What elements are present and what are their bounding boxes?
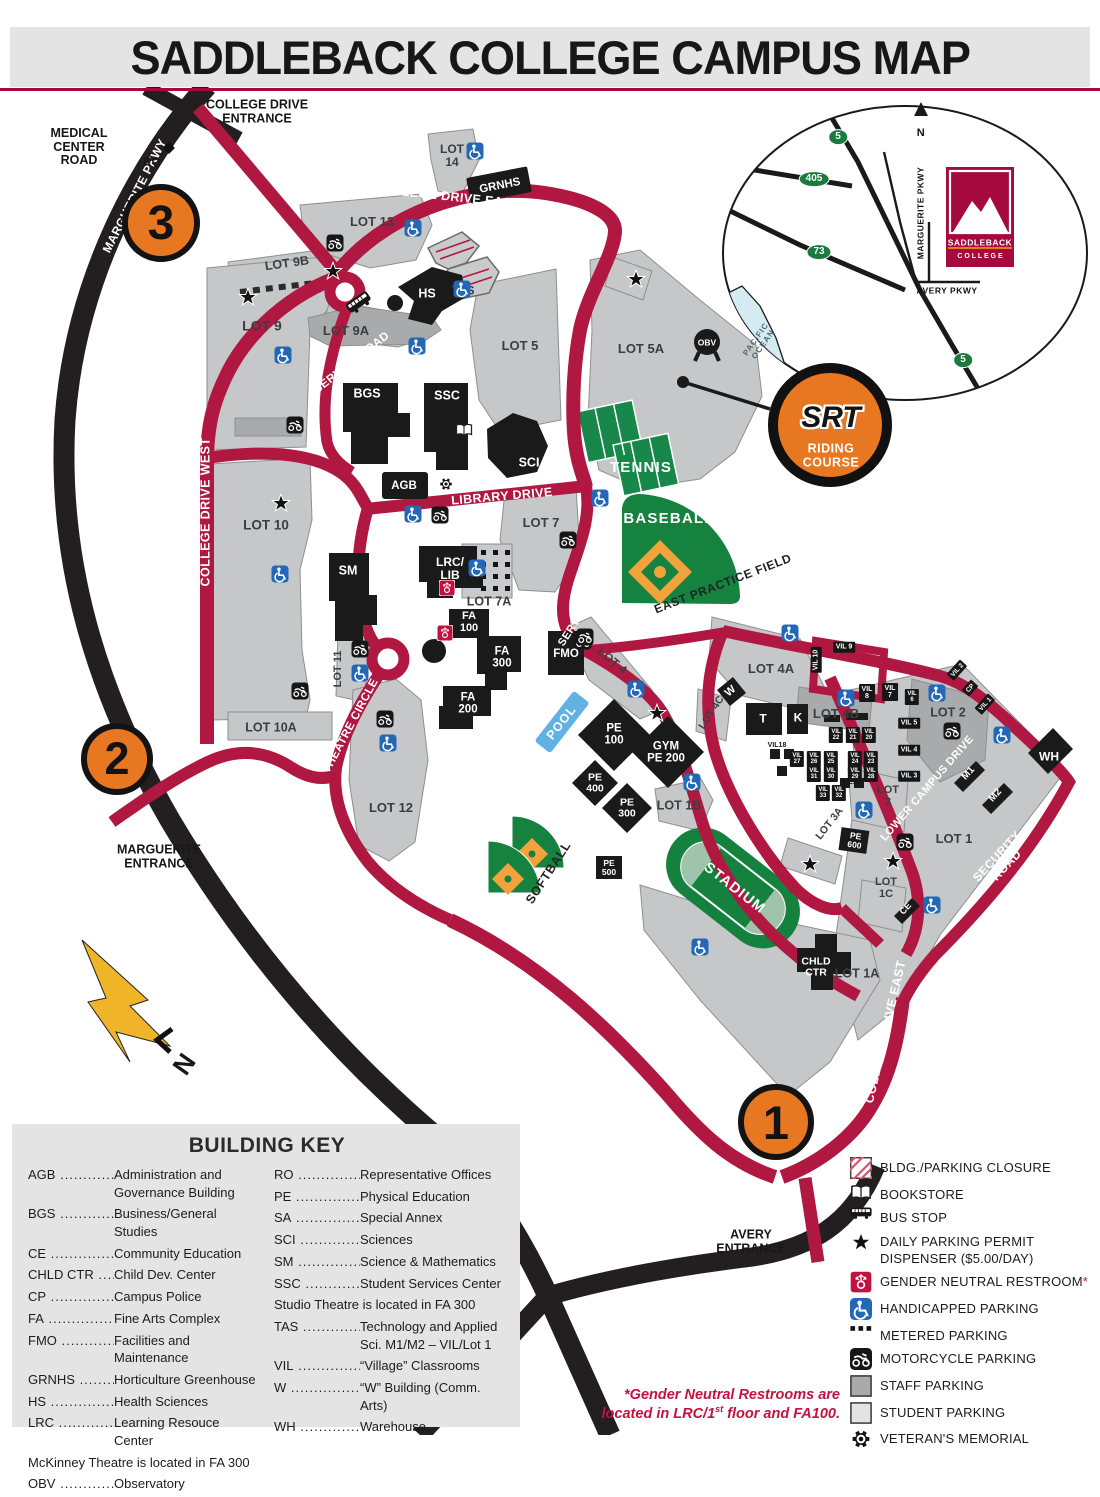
legend-label: MOTORCYCLE PARKING <box>880 1348 1036 1367</box>
building-desc: Special Annex <box>360 1209 506 1227</box>
legend-item-gender-neutral-restroom: GENDER NEUTRAL RESTROOM* <box>850 1271 1098 1293</box>
building-abbr: CHLD CTR <box>28 1266 114 1284</box>
legend-staff-icon <box>850 1375 880 1397</box>
building-abbr: PE <box>274 1188 360 1206</box>
building-abbr: SM <box>274 1253 360 1271</box>
legend-item-daily-parking-permit-dispenser-5-00-day: DAILY PARKING PERMITDISPENSER ($5.00/DAY… <box>850 1231 1098 1267</box>
building-abbr: SA <box>274 1209 360 1227</box>
legend-label: DAILY PARKING PERMITDISPENSER ($5.00/DAY… <box>880 1231 1034 1267</box>
building-key-row-sm: SMScience & Mathematics <box>274 1253 506 1271</box>
building-key-title: BUILDING KEY <box>28 1134 506 1158</box>
inset-map <box>723 102 1087 402</box>
building-key-row-ro: RORepresentative Offices <box>274 1166 506 1184</box>
building-abbr: FA <box>28 1310 114 1328</box>
page-title-banner: SADDLEBACK COLLEGE CAMPUS MAP <box>10 27 1090 87</box>
building-desc: “Village” Classrooms <box>360 1357 506 1375</box>
legend-label: HANDICAPPED PARKING <box>880 1298 1039 1317</box>
legend-student-icon <box>850 1402 880 1424</box>
building-desc: Child Dev. Center <box>114 1266 260 1284</box>
softball-fields <box>488 816 564 895</box>
building-desc: Science & Mathematics <box>360 1253 506 1271</box>
legend-label: BUS STOP <box>880 1207 947 1226</box>
legend-item-bldg-parking-closure: BLDG./PARKING CLOSURE <box>850 1157 1098 1179</box>
legend-item-handicapped-parking: HANDICAPPED PARKING <box>850 1298 1098 1320</box>
building-desc: Physical Education <box>360 1188 506 1206</box>
building-desc: Learning Resouce Center <box>114 1414 260 1449</box>
legend-label: GENDER NEUTRAL RESTROOM* <box>880 1271 1088 1290</box>
building-key-row-pe: PEPhysical Education <box>274 1188 506 1206</box>
legend-label: VETERAN'S MEMORIAL <box>880 1428 1029 1447</box>
route-marker-1: 1 <box>738 1084 814 1160</box>
building-abbr: W <box>274 1379 360 1414</box>
building-desc: Administration and Governance Building <box>114 1166 260 1201</box>
legend-hc-icon <box>850 1298 880 1320</box>
theatre-roundabout <box>372 643 404 675</box>
legend-label: METERED PARKING <box>880 1325 1008 1344</box>
building-key-note: Studio Theatre is located in FA 300 <box>274 1296 506 1314</box>
legend-label: BOOKSTORE <box>880 1184 964 1203</box>
building-desc: Campus Police <box>114 1288 260 1306</box>
building-desc: Health Sciences <box>114 1393 260 1411</box>
building-desc: Observatory <box>114 1475 260 1493</box>
route-marker-2: 2 <box>81 723 153 795</box>
building-key-row-vil: VIL“Village” Classrooms <box>274 1357 506 1375</box>
building-key-row-bgs: BGSBusiness/General Studies <box>28 1205 260 1240</box>
building-desc: Community Education <box>114 1245 260 1263</box>
legend-label: BLDG./PARKING CLOSURE <box>880 1157 1051 1176</box>
title-rule <box>0 88 1100 91</box>
building-abbr: RO <box>274 1166 360 1184</box>
building-abbr: CP <box>28 1288 114 1306</box>
building-abbr: VIL <box>274 1357 360 1375</box>
legend-item-bookstore: BOOKSTORE <box>850 1184 1098 1203</box>
building-key-row-fmo: FMOFacilities and Maintenance <box>28 1332 260 1367</box>
building-key-row-tas: TASTechnology and Applied Sci. M1/M2 – V… <box>274 1318 506 1353</box>
building-key-row-ssc: SSCStudent Services Center <box>274 1275 506 1293</box>
building-desc: Business/General Studies <box>114 1205 260 1240</box>
page-title: SADDLEBACK COLLEGE CAMPUS MAP <box>130 30 969 85</box>
campus-map-page: SADDLEBACK COLLEGE CAMPUS MAP MARGUERITE… <box>0 0 1100 1435</box>
route-marker-3: 3 <box>122 184 200 262</box>
legend-item-motorcycle-parking: MOTORCYCLE PARKING <box>850 1348 1098 1370</box>
legend-item-bus-stop: BUS STOP <box>850 1207 1098 1226</box>
building-key-row-hs: HSHealth Sciences <box>28 1393 260 1411</box>
legend-star-icon <box>850 1231 880 1253</box>
building-key-row-grnhs: GRNHSHorticulture Greenhouse <box>28 1371 260 1389</box>
building-abbr: TAS <box>274 1318 360 1353</box>
building-key-col2: RORepresentative OfficesPEPhysical Educa… <box>274 1166 506 1497</box>
map-legend: BLDG./PARKING CLOSUREBOOKSTOREBUS STOPDA… <box>850 1157 1098 1455</box>
building-key-panel: BUILDING KEY AGBAdministration and Gover… <box>12 1124 520 1427</box>
building-key-row-wh: WHWarehouse <box>274 1418 506 1436</box>
legend-item-student-parking: STUDENT PARKING <box>850 1402 1098 1424</box>
saddleback-logo <box>946 167 1014 267</box>
pool <box>534 691 589 754</box>
legend-label: STAFF PARKING <box>880 1375 984 1394</box>
building-key-row-sa: SASpecial Annex <box>274 1209 506 1227</box>
building-desc: Sciences <box>360 1231 506 1249</box>
legend-mc-icon <box>850 1348 880 1370</box>
building-abbr: WH <box>274 1418 360 1436</box>
building-key-row-w: W“W” Building (Comm. Arts) <box>274 1379 506 1414</box>
building-desc: Warehouse <box>360 1418 506 1436</box>
legend-metered-icon <box>850 1325 880 1332</box>
building-key-row-agb: AGBAdministration and Governance Buildin… <box>28 1166 260 1201</box>
building-key-row-cp: CPCampus Police <box>28 1288 260 1306</box>
building-key-row-obv: OBVObservatory <box>28 1475 260 1493</box>
building-abbr: BGS <box>28 1205 114 1240</box>
baseball-field <box>622 494 740 604</box>
legend-item-staff-parking: STAFF PARKING <box>850 1375 1098 1397</box>
legend-gnr-icon <box>850 1271 880 1293</box>
building-desc: Student Services Center <box>360 1275 506 1293</box>
building-abbr: GRNHS <box>28 1371 114 1389</box>
building-abbr: FMO <box>28 1332 114 1367</box>
north-arrow <box>82 940 172 1062</box>
building-desc: Technology and Applied Sci. M1/M2 – VIL/… <box>360 1318 506 1353</box>
building-abbr: SSC <box>274 1275 360 1293</box>
legend-vet-icon <box>850 1428 880 1450</box>
building-desc: Horticulture Greenhouse <box>114 1371 260 1389</box>
legend-label: STUDENT PARKING <box>880 1402 1005 1421</box>
building-abbr: OBV <box>28 1475 114 1493</box>
legend-item-metered-parking: METERED PARKING <box>850 1325 1098 1344</box>
building-key-note: McKinney Theatre is located in FA 300 <box>28 1454 260 1472</box>
building-abbr: CE <box>28 1245 114 1263</box>
building-desc: Facilities and Maintenance <box>114 1332 260 1367</box>
gender-neutral-footnote: *Gender Neutral Restrooms are located in… <box>590 1386 840 1423</box>
building-key-row-fa: FAFine Arts Complex <box>28 1310 260 1328</box>
legend-book-icon <box>850 1184 880 1201</box>
building-key-row-ce: CECommunity Education <box>28 1245 260 1263</box>
building-key-row-lrc: LRCLearning Resouce Center <box>28 1414 260 1449</box>
building-abbr: SCI <box>274 1231 360 1249</box>
building-abbr: HS <box>28 1393 114 1411</box>
building-abbr: AGB <box>28 1166 114 1201</box>
building-desc: “W” Building (Comm. Arts) <box>360 1379 506 1414</box>
building-key-row-sci: SCISciences <box>274 1231 506 1249</box>
bus-roundabout <box>330 277 360 307</box>
building-desc: Representative Offices <box>360 1166 506 1184</box>
building-key-row-chld-ctr: CHLD CTRChild Dev. Center <box>28 1266 260 1284</box>
legend-item-veteran-s-memorial: VETERAN'S MEMORIAL <box>850 1428 1098 1450</box>
building-key-col1: AGBAdministration and Governance Buildin… <box>28 1166 260 1497</box>
building-desc: Fine Arts Complex <box>114 1310 260 1328</box>
legend-closure-icon <box>850 1157 880 1179</box>
legend-bus-icon <box>850 1207 880 1219</box>
building-abbr: LRC <box>28 1414 114 1449</box>
